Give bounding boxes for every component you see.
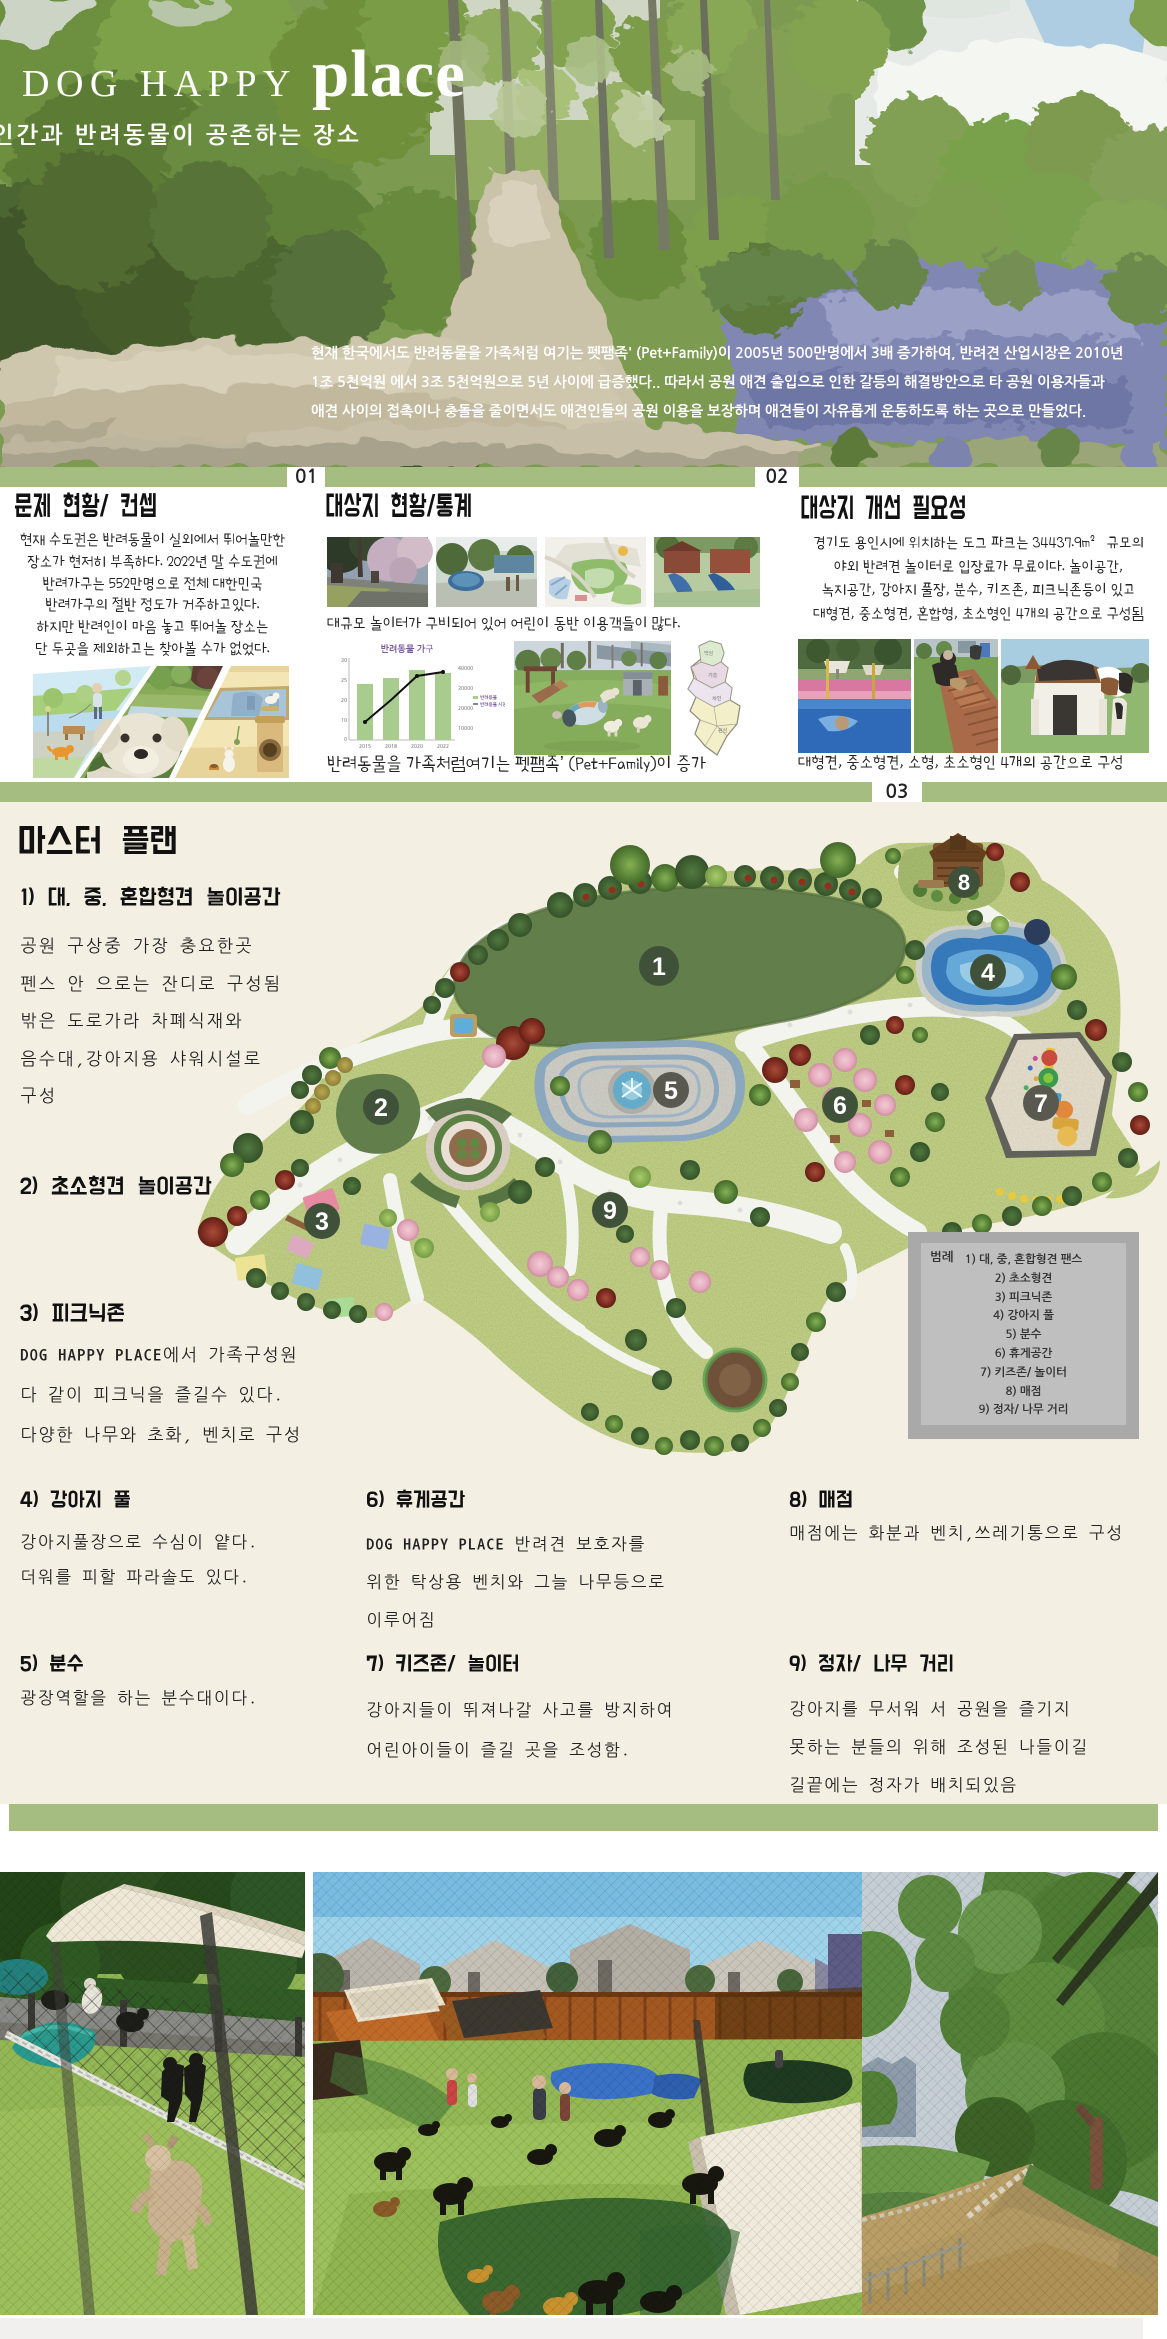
svg-text:20: 20	[341, 698, 347, 703]
svg-text:10: 10	[341, 718, 347, 723]
svg-text:8: 8	[958, 870, 970, 895]
svg-text:0: 0	[344, 737, 347, 742]
svg-text:2022: 2022	[437, 744, 449, 749]
svg-text:9: 9	[603, 1197, 617, 1225]
svg-text:반려동물: 반려동물	[480, 695, 498, 700]
svg-text:30: 30	[341, 658, 347, 663]
svg-text:2018: 2018	[385, 744, 397, 749]
svg-text:7: 7	[1034, 1090, 1048, 1118]
svg-text:백암: 백암	[704, 650, 714, 657]
svg-text:1: 1	[652, 953, 666, 981]
svg-text:처인: 처인	[712, 695, 722, 701]
svg-text:25: 25	[341, 678, 347, 683]
svg-text:30000: 30000	[458, 686, 473, 691]
svg-text:반려동물 가구: 반려동물 가구	[380, 643, 433, 654]
svg-text:2: 2	[374, 1094, 388, 1122]
svg-text:6: 6	[833, 1092, 847, 1120]
svg-text:10000: 10000	[458, 726, 473, 731]
svg-text:4: 4	[981, 959, 995, 987]
svg-text:3: 3	[315, 1208, 329, 1236]
svg-text:원삼: 원삼	[718, 727, 728, 733]
svg-text:반려동물 시장: 반려동물 시장	[480, 702, 505, 707]
svg-text:5: 5	[664, 1077, 678, 1105]
svg-text:2020: 2020	[411, 744, 423, 749]
svg-text:2015: 2015	[359, 744, 371, 749]
svg-text:40000: 40000	[458, 666, 473, 671]
svg-text:기흥: 기흥	[708, 672, 718, 678]
svg-text:20000: 20000	[458, 706, 473, 711]
